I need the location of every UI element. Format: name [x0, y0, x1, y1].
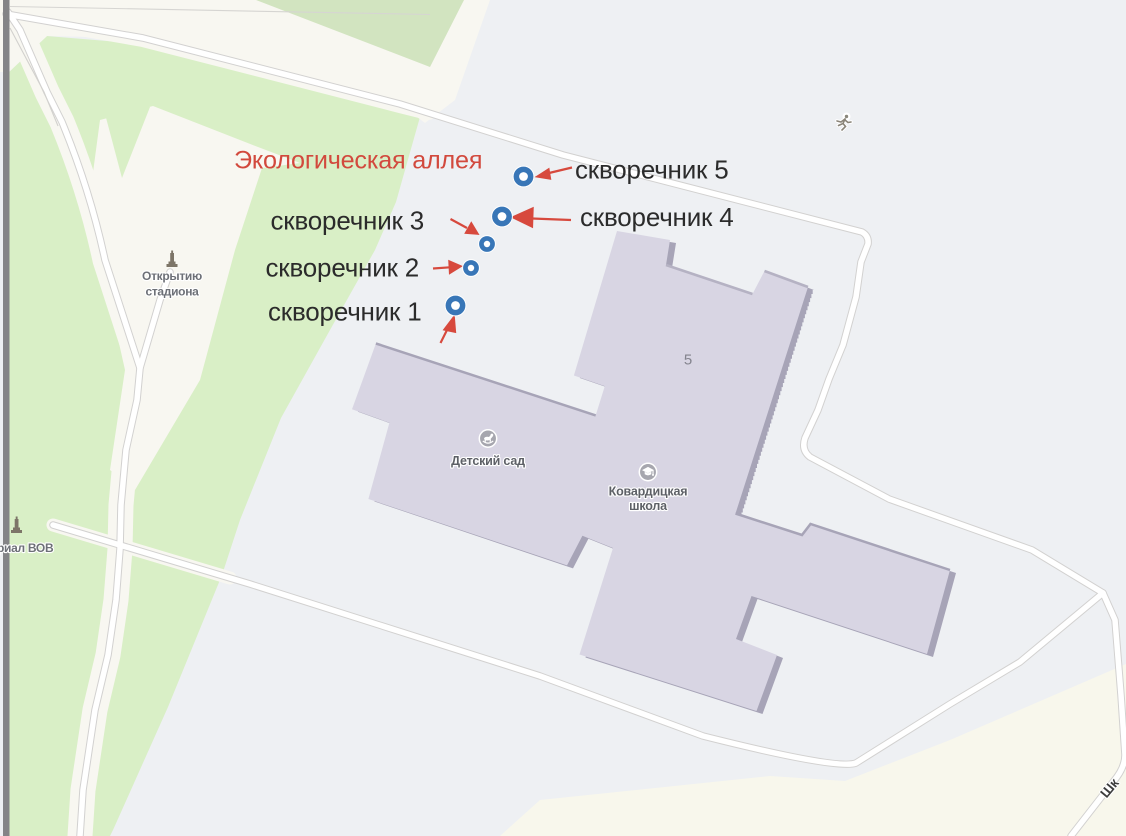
svg-text:скворечник 4: скворечник 4	[580, 202, 734, 232]
svg-text:стадиона: стадиона	[145, 285, 199, 299]
svg-text:Экологическая аллея: Экологическая аллея	[234, 147, 482, 175]
svg-text:скворечник 2: скворечник 2	[266, 253, 420, 283]
svg-text:5: 5	[684, 352, 692, 369]
svg-text:скворечник 1: скворечник 1	[268, 297, 422, 327]
svg-text:Ковардицкая: Ковардицкая	[609, 485, 688, 499]
svg-text:скворечник 3: скворечник 3	[271, 206, 425, 236]
svg-text:риал ВОВ: риал ВОВ	[0, 541, 54, 555]
svg-text:скворечник 5: скворечник 5	[575, 155, 729, 185]
svg-text:Детский сад: Детский сад	[451, 454, 525, 468]
svg-text:Открытию: Открытию	[142, 269, 202, 283]
svg-text:школа: школа	[629, 499, 668, 513]
